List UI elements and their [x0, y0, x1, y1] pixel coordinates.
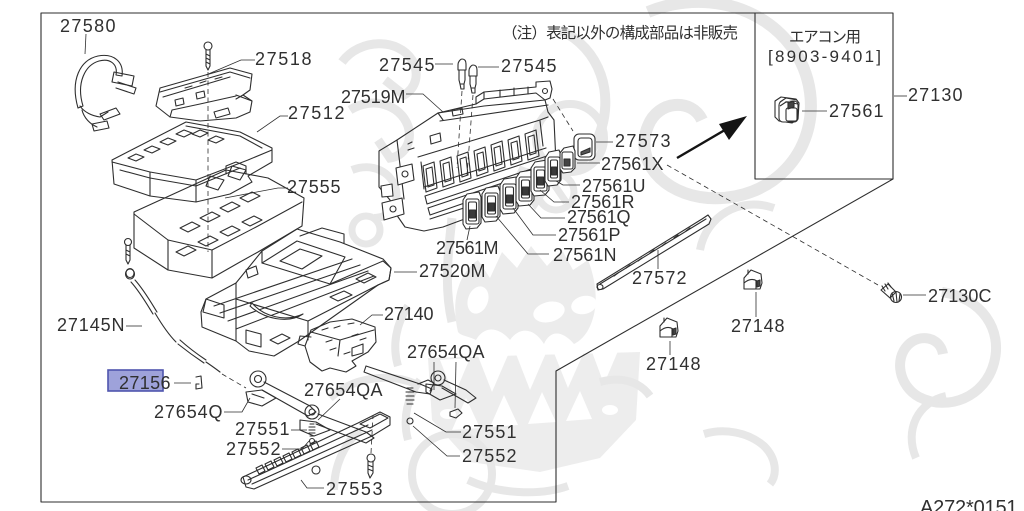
- svg-text:27572: 27572: [632, 268, 687, 288]
- svg-text:（注）表記以外の構成部品は非販売: （注）表記以外の構成部品は非販売: [502, 24, 738, 42]
- svg-text:27551: 27551: [235, 419, 290, 439]
- svg-text:27552: 27552: [226, 439, 281, 459]
- svg-text:27140: 27140: [384, 304, 434, 324]
- svg-text:27148: 27148: [646, 354, 701, 374]
- svg-text:27545: 27545: [379, 55, 435, 75]
- svg-text:27654Q: 27654Q: [154, 402, 223, 422]
- svg-text:エアコン用: エアコン用: [789, 29, 861, 46]
- svg-text:27654QA: 27654QA: [304, 380, 383, 400]
- svg-text:27519M: 27519M: [341, 87, 406, 107]
- svg-text:27145N: 27145N: [57, 315, 125, 335]
- svg-text:27545: 27545: [501, 56, 557, 76]
- svg-text:27156: 27156: [119, 373, 171, 393]
- svg-text:27512: 27512: [288, 103, 345, 123]
- svg-text:27561Q: 27561Q: [567, 207, 631, 227]
- svg-text:27130: 27130: [908, 85, 963, 105]
- svg-text:27561X: 27561X: [601, 154, 664, 174]
- svg-text:27654QA: 27654QA: [407, 342, 485, 362]
- svg-text:27561P: 27561P: [558, 225, 621, 245]
- svg-text:27518: 27518: [255, 49, 312, 69]
- svg-text:27573: 27573: [615, 131, 671, 151]
- svg-text:27580: 27580: [60, 16, 116, 36]
- svg-text:27551: 27551: [462, 422, 517, 442]
- svg-text:27148: 27148: [731, 316, 785, 336]
- svg-text:27520M: 27520M: [419, 261, 486, 281]
- svg-text:27561: 27561: [829, 101, 884, 121]
- svg-text:27553: 27553: [326, 479, 383, 499]
- svg-text:27555: 27555: [287, 177, 341, 197]
- svg-text:27561N: 27561N: [553, 245, 617, 265]
- svg-text:A272*0151: A272*0151: [920, 497, 1018, 511]
- svg-text:27561M: 27561M: [436, 238, 499, 258]
- svg-text:27130C: 27130C: [928, 286, 992, 306]
- svg-text:[8903-9401]: [8903-9401]: [768, 47, 881, 66]
- svg-text:27552: 27552: [462, 446, 517, 466]
